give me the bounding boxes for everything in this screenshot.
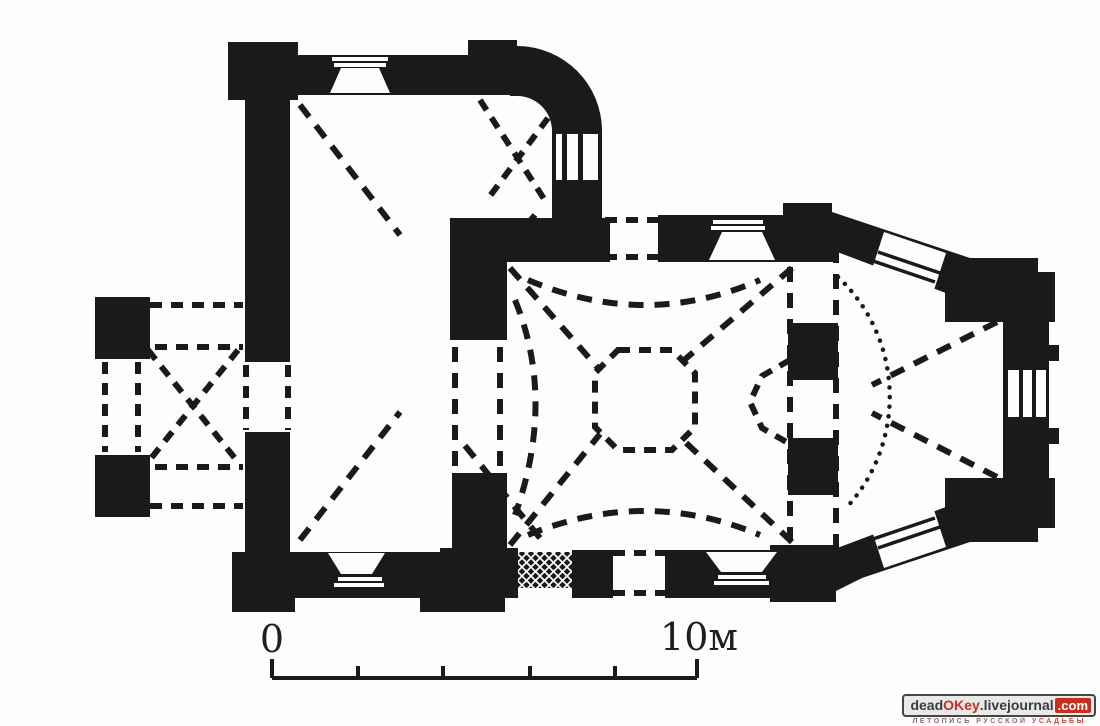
iconostasis-pier-south	[788, 438, 838, 495]
nave-south-wall-west-segment	[440, 548, 518, 598]
watermark-site-part1: dead	[910, 696, 943, 715]
scale-bar: 0 10м	[260, 615, 738, 678]
watermark-site-box: deadOKey.livejournal.com	[902, 694, 1096, 717]
refectory-curved-ne-corner-wall	[510, 46, 602, 218]
blocked-opening-crosshatch	[518, 552, 573, 588]
octagonal-drum-dashed	[595, 350, 695, 450]
nave-south-window-slit	[714, 581, 769, 585]
refectory-south-window-slit	[338, 577, 382, 581]
refectory-vault-diagonal	[300, 105, 400, 235]
watermark-site-part4: .com	[1055, 698, 1091, 713]
scanned-floor-plan-page: 0 10м deadOKey.livejournal.com ЛЕТОПИСЬ …	[0, 0, 1100, 726]
nave-south-arch-arc	[528, 511, 760, 535]
refectory-west-wall-lower	[245, 432, 290, 554]
nave-south-window-slit	[718, 575, 766, 579]
apse-ne-corner-pier	[945, 258, 1055, 322]
iconostasis-dashed-lines	[790, 222, 836, 560]
refectory-west-wall-upper	[245, 55, 290, 362]
watermark-site-part2: OKey	[943, 696, 980, 715]
curved-corner-window-mullion	[578, 134, 583, 180]
refectory-north-window-slit	[332, 57, 388, 61]
dashed-construction-lines	[105, 100, 997, 593]
altar-arch-half-octagon-dashed	[750, 360, 790, 444]
refectory-south-window-slit	[334, 583, 384, 587]
scale-max-label: 10м	[660, 615, 738, 659]
porch-pillar-north	[95, 297, 150, 359]
iconostasis-pier-north	[788, 323, 838, 380]
apse-east-pilaster-lower	[1049, 428, 1059, 444]
curved-corner-dashes	[480, 100, 548, 205]
nave-north-window-slit	[713, 220, 763, 224]
refectory-vault-diagonal	[300, 412, 400, 540]
nave-ne-corner-pier	[772, 215, 837, 262]
watermark-site-part3: .livejournal	[980, 696, 1054, 715]
blocked-opening-slit	[520, 589, 572, 593]
apse-east-window-mullion	[1019, 370, 1023, 417]
apse-east-window-mullion	[1032, 370, 1036, 417]
nave-vault-diagonal-nw	[510, 268, 598, 368]
watermark-tagline-part1: ЛЕТОПИСЬ РУССКОЙ	[913, 718, 1028, 725]
nave-south-wall-mid-segment	[572, 550, 613, 598]
scale-zero-label: 0	[260, 617, 284, 661]
nave-west-arch-arc	[515, 300, 536, 515]
church-floor-plan-drawing: 0 10м	[0, 0, 1100, 726]
nave-ne-pilaster	[783, 203, 832, 216]
apse-east-window	[1008, 370, 1046, 417]
nave-north-window-slit	[711, 226, 765, 230]
apse-vault-diagonal-ne	[872, 322, 997, 385]
apse-east-pilaster-upper	[1049, 345, 1059, 361]
curved-corner-window-mullion	[562, 134, 567, 180]
nave-sw-junction-pier	[452, 473, 507, 552]
refectory-sw-corner-pilaster	[232, 552, 295, 612]
blocked-opening-slit	[523, 594, 569, 597]
porch-pillar-south	[95, 455, 150, 517]
refectory-north-window-slit	[334, 63, 386, 67]
watermark-tagline-part2: УСАДЬБЫ	[1032, 718, 1086, 725]
apse-vault-diagonal-se	[872, 413, 997, 477]
watermark-tagline: ЛЕТОПИСЬ РУССКОЙ УСАДЬБЫ	[902, 718, 1096, 725]
nave-south-pier	[665, 550, 712, 598]
refectory-north-pilaster	[468, 40, 517, 57]
watermark: deadOKey.livejournal.com ЛЕТОПИСЬ РУССКО…	[902, 694, 1096, 725]
nave-vault-diagonal-ne	[683, 268, 792, 361]
apse-dotted-arc	[838, 277, 890, 507]
nave-north-arch-arc	[528, 280, 760, 305]
